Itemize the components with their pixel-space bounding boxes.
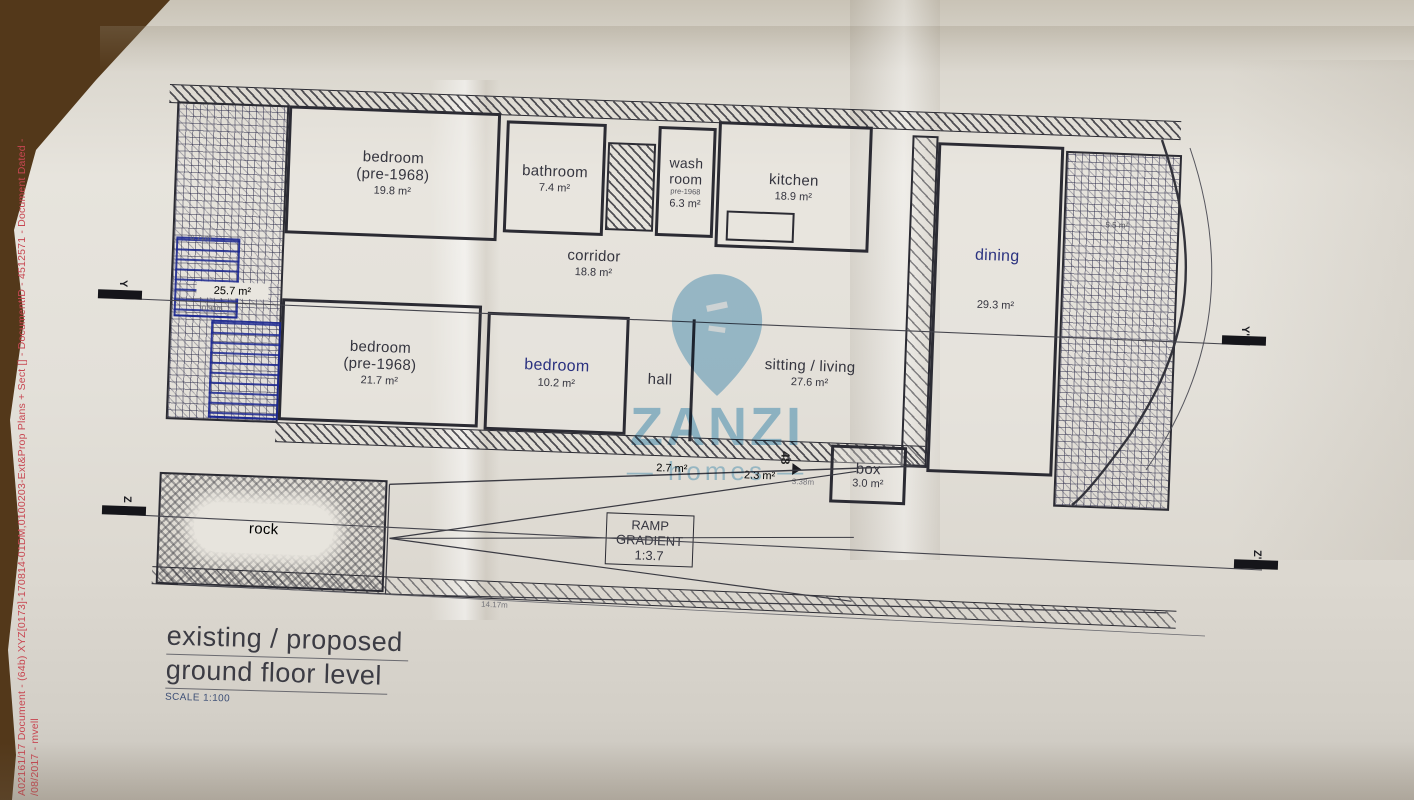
yard-area-value: 25.7 m²	[214, 285, 252, 298]
room-era: pre-1968	[670, 186, 700, 196]
room-label: dining	[975, 247, 1020, 267]
document-edge-annotation: A02161/17 Document - (64b) XYZ[0173]-170…	[16, 36, 42, 796]
room-area: 18.9 m²	[774, 190, 812, 203]
drawing-title-line2: ground floor level	[165, 655, 388, 695]
dimension-label: 0.90m	[202, 303, 223, 313]
dimension-label: 14.17m	[481, 600, 508, 610]
dimension-label: 0.71m	[190, 233, 211, 243]
room-sitting-living: sitting / living 27.6 m²	[693, 296, 926, 450]
room-bedroom-3: bedroom 10.2 m²	[484, 312, 630, 435]
room-label: bedroom	[524, 356, 590, 376]
edge-annotation-line1: A02161/17 Document - (64b) XYZ[0173]-170…	[16, 36, 29, 796]
room-washroom: wash room pre-1968 6.3 m²	[655, 126, 717, 238]
room-bedroom-2: bedroom (pre-1968) 21.7 m²	[278, 298, 482, 427]
edge-annotation-line2: /08/2017 - mvell	[29, 36, 42, 796]
lobby-area-label: 2.3 m²	[744, 469, 776, 482]
photo-of-floor-plan: { "edge_note": { "line1": "A02161/17 Doc…	[0, 0, 1414, 800]
lobby-area-label: 2.7 m²	[656, 462, 688, 475]
room-label: sitting / living	[764, 355, 855, 375]
room-bedroom-1: bedroom (pre-1968) 19.8 m²	[285, 105, 502, 241]
room-label: kitchen	[769, 171, 819, 190]
room-area: 6.3 m²	[669, 197, 701, 210]
room-shaft: 5.5 m²	[1053, 151, 1182, 511]
room-label2: room	[669, 170, 703, 187]
room-area: 7.4 m²	[539, 181, 571, 194]
ramp-line2: GRADIENT	[616, 531, 684, 548]
step-count-label: 48	[778, 451, 792, 465]
room-dining: dining 29.3 m²	[926, 142, 1064, 476]
title-block: existing / proposed ground floor level S…	[165, 621, 409, 710]
room-label: bathroom	[522, 161, 588, 180]
room-label: corridor	[567, 247, 621, 266]
room-area: 27.6 m²	[791, 375, 829, 388]
yard-area-label: 25.7 m²	[196, 281, 269, 300]
ramp-gradient-note: RAMP GRADIENT 1:3.7	[605, 512, 695, 567]
room-area: 21.7 m²	[360, 374, 398, 387]
service-shaft	[605, 142, 656, 232]
kitchen-counter	[726, 210, 795, 242]
room-label: wash	[669, 154, 703, 171]
room-box: box 3.0 m²	[829, 444, 907, 505]
ramp-line3: 1:3.7	[634, 547, 663, 563]
stairs-lower-flight	[208, 320, 282, 420]
room-label: hall	[647, 370, 672, 388]
room-sublabel: (pre-1968)	[343, 355, 417, 375]
ramp-line1: RAMP	[631, 517, 669, 533]
room-label: box	[856, 460, 882, 478]
room-area: 19.8 m²	[373, 185, 411, 198]
dimension-label: 3.38m	[792, 477, 815, 487]
floor-plan: 25.7 m² 0.71m 0.90m bedroom (pre-1968) 1…	[151, 84, 1195, 651]
room-kitchen: kitchen 18.9 m²	[714, 121, 873, 253]
room-label: rock	[249, 520, 279, 538]
room-corridor: corridor 18.8 m²	[523, 245, 664, 281]
room-sublabel: (pre-1968)	[356, 165, 430, 185]
room-area: 10.2 m²	[537, 377, 575, 390]
room-area: 18.8 m²	[575, 266, 613, 279]
room-area: 29.3 m²	[977, 299, 1015, 312]
rock-label-patch: rock	[193, 501, 335, 556]
step-direction-arrow-icon	[792, 463, 801, 475]
room-hall: hall	[627, 317, 695, 441]
room-area: 3.0 m²	[852, 477, 884, 490]
shaft-area: 5.5 m²	[1105, 220, 1128, 230]
room-bathroom: bathroom 7.4 m²	[503, 120, 607, 236]
